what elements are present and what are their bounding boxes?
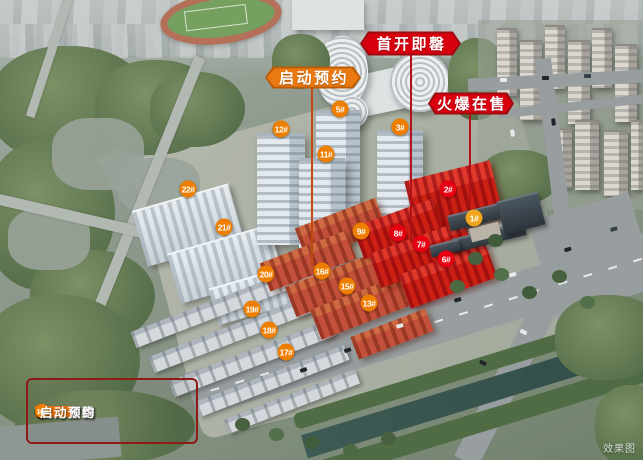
building-badge-5: 5#	[332, 101, 349, 118]
building-badge-9: 9#	[353, 223, 370, 240]
building-badge-19: 19#	[244, 301, 261, 318]
callout-label: 启动预约	[277, 67, 349, 88]
building-badge-12: 12#	[273, 121, 290, 138]
leader-line-qidong-yuyue	[311, 88, 313, 266]
leader-line-huobao-zaishou	[469, 114, 471, 204]
callout-shoukai-jiqing: 首开即罄	[360, 31, 461, 56]
callout-huobao-zaishou: 火爆在售	[428, 92, 514, 115]
watermark: 效果图	[603, 440, 636, 455]
leader-line-shoukai-jiqing	[410, 55, 412, 243]
building-badge-8: 8#	[390, 225, 407, 242]
callout-label: 火爆在售	[435, 93, 507, 114]
callout-qidong-yuyue: 启动预约	[265, 66, 361, 89]
building-badge-11: 11#	[318, 146, 335, 163]
building-badge-3: 3#	[392, 119, 409, 136]
building-badge-7: 7#	[413, 236, 430, 253]
legend-rows: 2#火爆在售6#7#8#首开即罄9#13#15#16#启动预约	[35, 384, 189, 438]
legend: 2#火爆在售6#7#8#首开即罄9#13#15#16#启动预约	[26, 378, 198, 444]
building-badge-22: 22#	[180, 181, 197, 198]
building-badge-17: 17#	[278, 344, 295, 361]
building-badge-13: 13#	[361, 295, 378, 312]
building-badge-6: 6#	[438, 251, 455, 268]
callout-label: 首开即罄	[374, 33, 446, 54]
legend-label: 启动预约	[40, 402, 96, 421]
building-badge-1: 1#	[466, 210, 483, 227]
building-badge-21: 21#	[216, 219, 233, 236]
building-badge-16: 16#	[314, 263, 331, 280]
building-badge-15: 15#	[339, 278, 356, 295]
aerial-rendering: 启动预约首开即罄火爆在售 12#5#3#11#22#21#2#1#9#8#7#6…	[0, 0, 643, 460]
building-badge-20: 20#	[258, 266, 275, 283]
building-badge-2: 2#	[440, 181, 457, 198]
building-badge-18: 18#	[261, 322, 278, 339]
